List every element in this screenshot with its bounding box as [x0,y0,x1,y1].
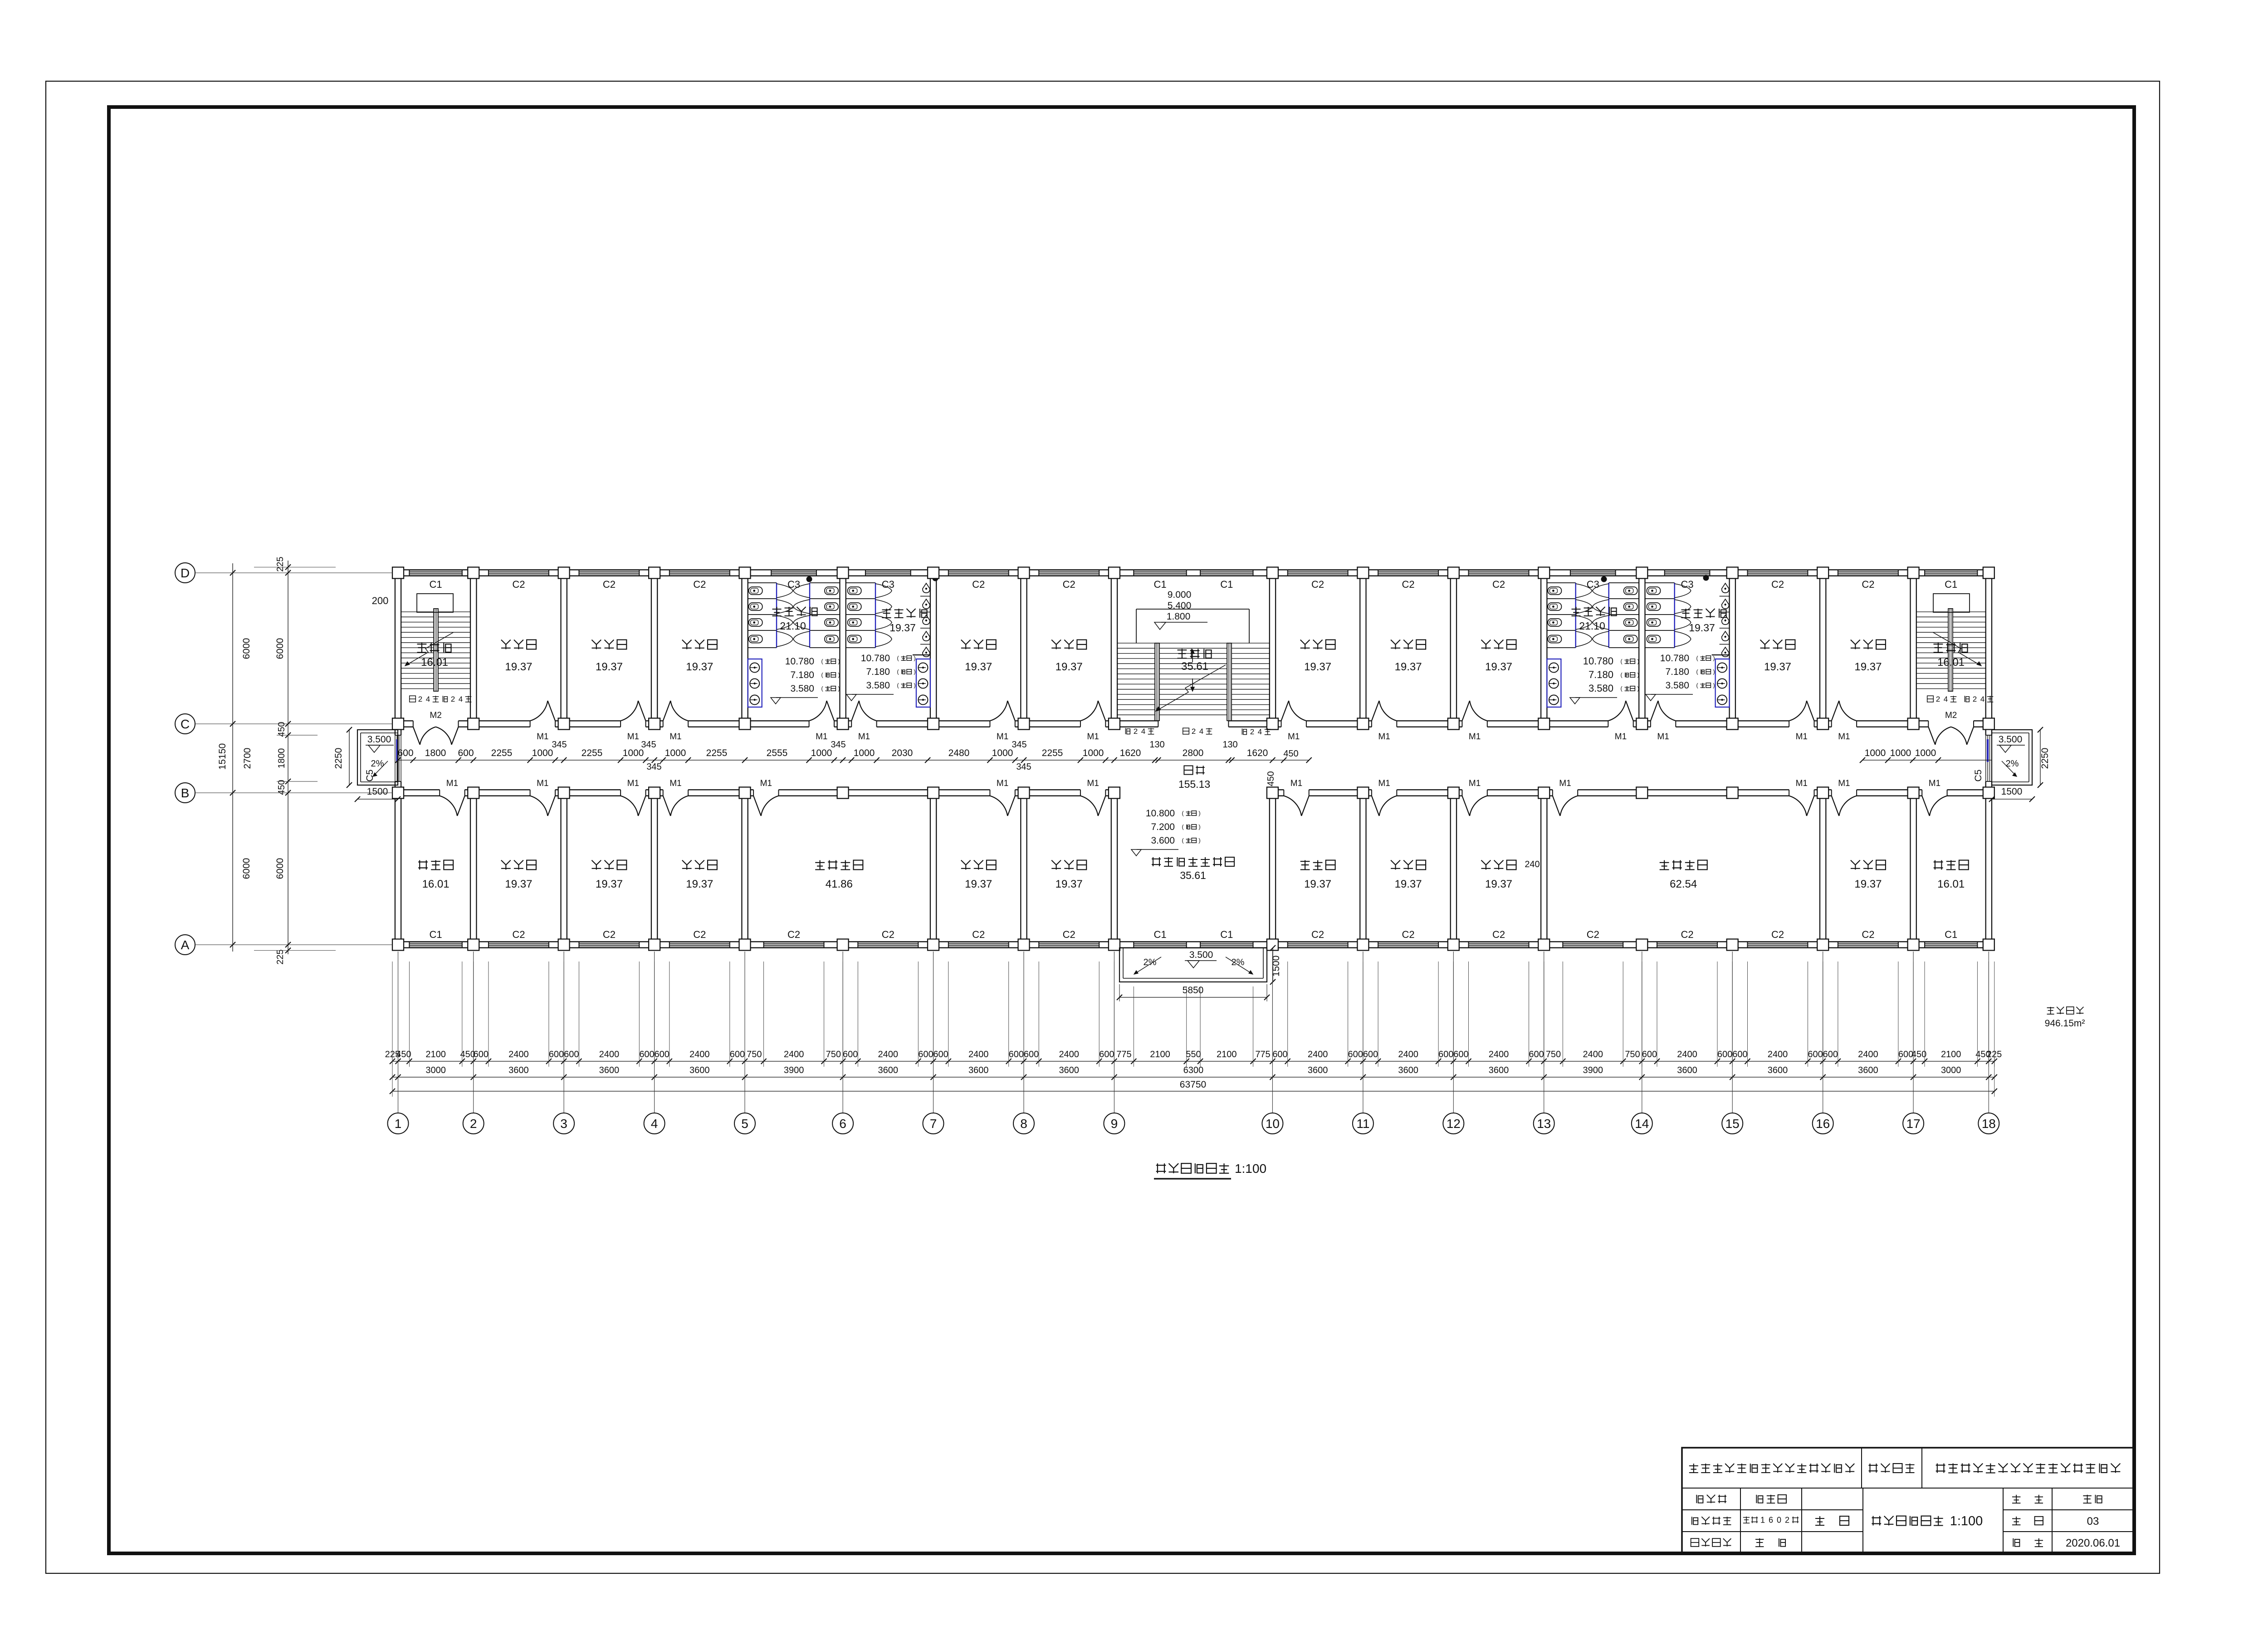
svg-text:3.580: 3.580 [790,683,814,694]
svg-text:): ) [914,655,915,662]
svg-text:345: 345 [831,740,846,750]
svg-text:12: 12 [1447,1117,1461,1131]
svg-text:C3: C3 [1681,579,1693,590]
svg-text:2: 2 [451,695,455,703]
svg-text:10.800: 10.800 [1146,808,1175,819]
svg-text:(: ( [1696,682,1698,689]
svg-text:M1: M1 [1615,732,1627,742]
svg-text:C2: C2 [1063,579,1075,590]
svg-text:13: 13 [1537,1117,1551,1131]
svg-text:19.37: 19.37 [505,661,532,673]
svg-text:2: 2 [1973,695,1977,703]
svg-text:2400: 2400 [689,1049,710,1059]
svg-text:C2: C2 [1311,579,1324,590]
svg-text:600: 600 [1808,1049,1823,1059]
svg-text:C5: C5 [1973,770,1984,782]
svg-text:600: 600 [1642,1049,1657,1059]
svg-text:1620: 1620 [1120,748,1141,758]
svg-text:M1: M1 [1838,732,1850,742]
svg-text:): ) [1198,824,1200,830]
svg-text:775: 775 [1116,1049,1131,1059]
svg-text:): ) [838,658,840,665]
svg-text:600: 600 [458,748,474,758]
svg-text:15: 15 [1725,1117,1740,1131]
svg-text:19.37: 19.37 [1764,661,1791,673]
svg-text:450: 450 [1911,1049,1926,1059]
svg-text:8: 8 [1020,1117,1027,1131]
svg-text:450: 450 [277,780,287,795]
svg-text:19.37: 19.37 [686,661,713,673]
svg-text:2400: 2400 [878,1049,899,1059]
svg-text:C2: C2 [1862,929,1874,940]
svg-text:3900: 3900 [784,1065,804,1075]
svg-text:3600: 3600 [1858,1065,1878,1075]
svg-text:345: 345 [1012,740,1026,750]
svg-text:1:100: 1:100 [1235,1162,1266,1176]
svg-text:9: 9 [1111,1117,1118,1131]
svg-text:M1: M1 [1378,732,1390,742]
svg-text:C1: C1 [1945,929,1957,940]
svg-text:19.37: 19.37 [686,878,713,890]
svg-text:2400: 2400 [968,1049,989,1059]
svg-text:600: 600 [1732,1049,1747,1059]
svg-text:4: 4 [1980,695,1984,703]
svg-text:345: 345 [1016,762,1031,772]
svg-text:130: 130 [1149,740,1164,750]
svg-text:6300: 6300 [1183,1065,1204,1075]
svg-text:946.15m²: 946.15m² [2045,1018,2085,1029]
svg-text:M1: M1 [816,732,827,742]
svg-text:35.61: 35.61 [1181,660,1208,673]
svg-text:C2: C2 [693,579,706,590]
svg-text:2020.06.01: 2020.06.01 [2066,1537,2120,1549]
svg-text:(: ( [897,669,899,675]
svg-text:C1: C1 [1154,579,1166,590]
svg-text:3600: 3600 [1768,1065,1788,1075]
svg-text:C2: C2 [882,929,894,940]
svg-text:345: 345 [552,740,567,750]
svg-text:2400: 2400 [1398,1049,1418,1059]
svg-text:1000: 1000 [1915,748,1936,758]
svg-text:19.37: 19.37 [596,661,623,673]
svg-text:2%: 2% [1144,957,1157,967]
svg-text:C2: C2 [1311,929,1324,940]
svg-text:C2: C2 [1771,929,1784,940]
svg-text:130: 130 [1222,740,1237,750]
svg-text:10.780: 10.780 [785,656,814,667]
svg-text:10: 10 [1266,1117,1280,1131]
svg-text:4: 4 [426,695,430,703]
svg-text:1.800: 1.800 [1167,611,1191,622]
svg-text:16.01: 16.01 [422,878,450,890]
svg-text:3.600: 3.600 [1151,835,1175,846]
svg-text:450: 450 [396,1049,411,1059]
svg-text:M2: M2 [430,711,441,720]
svg-text:): ) [838,685,840,692]
svg-text:16.01: 16.01 [421,656,448,669]
svg-text:C2: C2 [1587,929,1599,940]
svg-text:M1: M1 [1838,779,1850,788]
svg-text:35.61: 35.61 [1180,869,1206,881]
svg-text:7.180: 7.180 [1665,667,1689,677]
svg-text:C2: C2 [972,929,985,940]
svg-text:450: 450 [1283,749,1298,759]
svg-text:600: 600 [730,1049,745,1059]
svg-text:M1: M1 [1469,779,1481,788]
svg-text:2: 2 [1192,727,1196,736]
svg-text:2: 2 [1936,695,1940,703]
svg-text:2: 2 [1785,1516,1789,1525]
svg-text:2400: 2400 [1677,1049,1697,1059]
svg-text:2100: 2100 [1150,1049,1170,1059]
svg-text:(: ( [1620,658,1623,665]
svg-text:6000: 6000 [241,858,252,879]
svg-text:600: 600 [474,1049,489,1059]
svg-text:3000: 3000 [1941,1065,1961,1075]
svg-text:3600: 3600 [1398,1065,1418,1075]
svg-text:7.180: 7.180 [790,670,814,680]
svg-text:C3: C3 [882,579,894,590]
svg-text:M1: M1 [1929,779,1941,788]
svg-text:2250: 2250 [2040,748,2050,769]
svg-text:1500: 1500 [2001,786,2023,797]
svg-text:19.37: 19.37 [1304,661,1331,673]
svg-text:1000: 1000 [811,748,832,758]
svg-text:M1: M1 [997,732,1008,742]
svg-text:C3: C3 [1587,579,1599,590]
svg-text:2%: 2% [371,759,384,769]
svg-text:17: 17 [1906,1117,1921,1131]
svg-text:2255: 2255 [706,748,728,758]
svg-text:1: 1 [1760,1516,1765,1525]
svg-text:9.000: 9.000 [1168,590,1192,600]
svg-text:1000: 1000 [854,748,875,758]
svg-text:M1: M1 [1469,732,1481,742]
svg-text:(: ( [1182,810,1184,817]
svg-text:7.180: 7.180 [866,667,890,677]
svg-text:C1: C1 [1220,929,1233,940]
svg-text:M1: M1 [537,779,548,788]
svg-text:200: 200 [372,595,389,606]
svg-text:1000: 1000 [1083,748,1104,758]
svg-text:2%: 2% [1232,957,1245,967]
svg-text:M1: M1 [627,732,639,742]
svg-text:4: 4 [651,1117,658,1131]
svg-text:C2: C2 [1771,579,1784,590]
svg-text:C1: C1 [430,929,442,940]
svg-text:3600: 3600 [689,1065,710,1075]
svg-text:5: 5 [741,1117,748,1131]
svg-text:M1: M1 [858,732,870,742]
svg-text:M1: M1 [1378,779,1390,788]
svg-text:): ) [914,682,915,689]
svg-text:2400: 2400 [1858,1049,1878,1059]
svg-text:6000: 6000 [275,638,285,659]
svg-text:345: 345 [641,740,656,750]
svg-text:2555: 2555 [767,748,788,758]
svg-text:19.37: 19.37 [596,878,623,890]
svg-text:5.400: 5.400 [1168,600,1192,611]
svg-text:M2: M2 [1945,711,1957,720]
svg-text:3.580: 3.580 [1589,683,1613,694]
svg-text:16.01: 16.01 [1937,656,1965,669]
svg-text:19.37: 19.37 [1395,878,1422,890]
svg-text:C1: C1 [1945,579,1957,590]
svg-text:3600: 3600 [599,1065,620,1075]
svg-text:M1: M1 [1796,732,1808,742]
svg-text:C2: C2 [1402,929,1415,940]
svg-text:19.37: 19.37 [1485,878,1512,890]
svg-text:19.37: 19.37 [1854,878,1882,890]
svg-text:2: 2 [470,1117,477,1131]
svg-text:10.780: 10.780 [1583,655,1613,667]
svg-text:2400: 2400 [599,1049,620,1059]
svg-text:3600: 3600 [1308,1065,1328,1075]
svg-text:600: 600 [1009,1049,1024,1059]
svg-text:2: 2 [1134,727,1138,736]
svg-text:): ) [914,669,915,675]
svg-text:3900: 3900 [1583,1065,1603,1075]
svg-text:450: 450 [1266,771,1276,786]
svg-text:): ) [838,672,840,678]
svg-text:240: 240 [1525,859,1540,869]
svg-text:2700: 2700 [242,748,253,769]
svg-text:M1: M1 [446,779,458,788]
svg-text:C2: C2 [512,929,525,940]
svg-text:155.13: 155.13 [1178,778,1210,790]
svg-text:M1: M1 [670,732,681,742]
svg-text:10.780: 10.780 [1660,653,1689,664]
svg-text:4: 4 [1141,727,1145,736]
svg-text:19.37: 19.37 [1689,622,1715,634]
svg-text:1500: 1500 [367,786,388,797]
svg-text:3600: 3600 [1489,1065,1509,1075]
svg-text:21.10: 21.10 [1579,620,1605,632]
svg-text:1:100: 1:100 [1950,1514,1983,1528]
svg-text:(: ( [1182,824,1184,830]
svg-text:M1: M1 [1796,779,1808,788]
svg-text:): ) [1198,837,1200,844]
svg-text:600: 600 [918,1049,933,1059]
svg-text:1800: 1800 [277,748,287,769]
svg-text:2400: 2400 [784,1049,804,1059]
svg-text:1000: 1000 [992,748,1013,758]
svg-text:2480: 2480 [948,748,970,758]
svg-text:M1: M1 [1087,779,1099,788]
svg-text:16.01: 16.01 [1937,878,1965,890]
svg-text:3600: 3600 [878,1065,899,1075]
svg-text:600: 600 [843,1049,858,1059]
svg-text:14: 14 [1635,1117,1649,1131]
svg-text:2100: 2100 [425,1049,446,1059]
svg-text:2400: 2400 [1583,1049,1603,1059]
svg-text:550: 550 [1186,1049,1201,1059]
svg-text:3.500: 3.500 [1189,950,1213,960]
svg-text:C2: C2 [1681,929,1693,940]
svg-text:6000: 6000 [275,858,285,879]
svg-text:775: 775 [1255,1049,1270,1059]
svg-text:19.37: 19.37 [1056,661,1083,673]
svg-text:): ) [1637,672,1639,678]
svg-text:600: 600 [1453,1049,1468,1059]
svg-text:600: 600 [1272,1049,1287,1059]
svg-text:2250: 2250 [333,748,344,769]
svg-text:(: ( [821,672,823,678]
svg-text:18: 18 [1982,1117,1996,1131]
svg-text:11: 11 [1356,1117,1369,1131]
svg-text:19.37: 19.37 [1056,878,1083,890]
svg-text:M1: M1 [997,779,1008,788]
svg-text:750: 750 [747,1049,762,1059]
svg-text:19.37: 19.37 [1304,878,1331,890]
svg-text:M1: M1 [1559,779,1571,788]
svg-text:3: 3 [560,1117,567,1131]
svg-text:1620: 1620 [1247,748,1268,758]
svg-text:450: 450 [277,722,287,737]
svg-text:3000: 3000 [425,1065,446,1075]
svg-text:C1: C1 [1154,929,1166,940]
svg-text:4: 4 [1944,695,1948,703]
svg-text:7: 7 [930,1117,937,1131]
svg-text:2: 2 [1250,727,1254,736]
svg-text:): ) [1713,682,1715,689]
svg-text:450: 450 [1975,1049,1990,1059]
svg-text:600: 600 [1823,1049,1838,1059]
svg-text:1000: 1000 [1890,748,1911,758]
svg-text:600: 600 [1348,1049,1363,1059]
svg-text:C2: C2 [693,929,706,940]
svg-text:600: 600 [1024,1049,1039,1059]
svg-text:C2: C2 [1402,579,1415,590]
svg-text:3600: 3600 [1059,1065,1079,1075]
svg-text:16: 16 [1816,1117,1830,1131]
svg-text:3.580: 3.580 [1665,680,1689,691]
svg-text:2400: 2400 [508,1049,529,1059]
svg-text:63750: 63750 [1180,1079,1206,1090]
svg-text:750: 750 [826,1049,841,1059]
svg-text:1800: 1800 [425,748,446,758]
svg-text:A: A [181,938,190,952]
svg-text:M1: M1 [1087,732,1099,742]
svg-text:(: ( [897,655,899,662]
svg-text:2400: 2400 [1059,1049,1079,1059]
svg-text:): ) [1637,685,1639,692]
svg-text:C2: C2 [1862,579,1874,590]
svg-text:3.500: 3.500 [367,734,391,745]
svg-text:2255: 2255 [1042,748,1063,758]
svg-text:600: 600 [639,1049,654,1059]
svg-text:C1: C1 [430,579,442,590]
svg-text:600: 600 [564,1049,579,1059]
svg-text:600: 600 [1529,1049,1544,1059]
svg-text:(: ( [821,658,823,665]
svg-text:2: 2 [418,695,422,703]
svg-text:600: 600 [1438,1049,1453,1059]
svg-text:15150: 15150 [217,743,228,770]
svg-text:(: ( [1620,685,1623,692]
svg-text:345: 345 [646,762,661,772]
svg-text:M1: M1 [537,732,548,742]
svg-text:2400: 2400 [1768,1049,1788,1059]
svg-text:C: C [181,717,190,731]
svg-text:2030: 2030 [892,748,913,758]
svg-text:1000: 1000 [665,748,686,758]
svg-text:1000: 1000 [1865,748,1886,758]
svg-text:M1: M1 [1657,732,1669,742]
svg-text:(: ( [897,682,899,689]
svg-text:M1: M1 [670,779,681,788]
svg-text:19.37: 19.37 [1854,661,1882,673]
svg-text:C2: C2 [512,579,525,590]
svg-text:19.37: 19.37 [965,878,992,890]
svg-text:19.37: 19.37 [965,661,992,673]
svg-text:6: 6 [839,1117,846,1131]
svg-text:M1: M1 [1288,732,1300,742]
svg-text:(: ( [821,685,823,692]
svg-text:): ) [1713,655,1715,662]
svg-text:2%: 2% [2006,759,2019,769]
svg-text:03: 03 [2087,1515,2099,1528]
svg-text:2400: 2400 [1308,1049,1328,1059]
svg-text:10.780: 10.780 [861,653,890,664]
svg-text:600: 600 [1717,1049,1732,1059]
svg-text:2255: 2255 [491,748,513,758]
svg-text:C2: C2 [1063,929,1075,940]
svg-text:C1: C1 [1220,579,1233,590]
svg-text:D: D [181,566,190,580]
svg-text:225: 225 [275,556,285,571]
svg-text:M1: M1 [760,779,772,788]
svg-text:19.37: 19.37 [890,622,916,634]
svg-text:C2: C2 [972,579,985,590]
svg-text:(: ( [1696,655,1698,662]
svg-text:7.180: 7.180 [1589,669,1613,680]
svg-text:750: 750 [1625,1049,1640,1059]
svg-text:C2: C2 [1492,929,1505,940]
svg-text:B: B [181,786,190,800]
svg-text:2800: 2800 [1183,748,1204,758]
svg-text:C3: C3 [787,579,800,590]
svg-text:225: 225 [275,949,285,964]
svg-text:750: 750 [1546,1049,1561,1059]
svg-text:62.54: 62.54 [1670,878,1697,890]
svg-text:C2: C2 [603,579,616,590]
svg-text:3.580: 3.580 [866,680,890,691]
svg-text:19.37: 19.37 [1395,661,1422,673]
svg-text:1: 1 [395,1117,402,1131]
svg-text:2255: 2255 [582,748,603,758]
svg-text:6000: 6000 [241,638,252,659]
svg-text:4: 4 [459,695,463,703]
svg-text:): ) [1637,658,1639,665]
svg-text:(: ( [1620,672,1623,678]
svg-text:600: 600 [1099,1049,1114,1059]
svg-text:600: 600 [1363,1049,1378,1059]
svg-text:6: 6 [1769,1516,1773,1525]
svg-text:0: 0 [1777,1516,1781,1525]
svg-text:C2: C2 [1492,579,1505,590]
svg-text:7.200: 7.200 [1151,822,1175,832]
svg-text:600: 600 [655,1049,670,1059]
svg-text:M1: M1 [1290,779,1302,788]
svg-text:3.500: 3.500 [1999,734,2023,745]
svg-text:3600: 3600 [968,1065,989,1075]
svg-text:2400: 2400 [1489,1049,1509,1059]
svg-text:M1: M1 [627,779,639,788]
svg-text:): ) [1713,669,1715,675]
svg-text:41.86: 41.86 [826,878,853,890]
svg-text:2100: 2100 [1217,1049,1237,1059]
